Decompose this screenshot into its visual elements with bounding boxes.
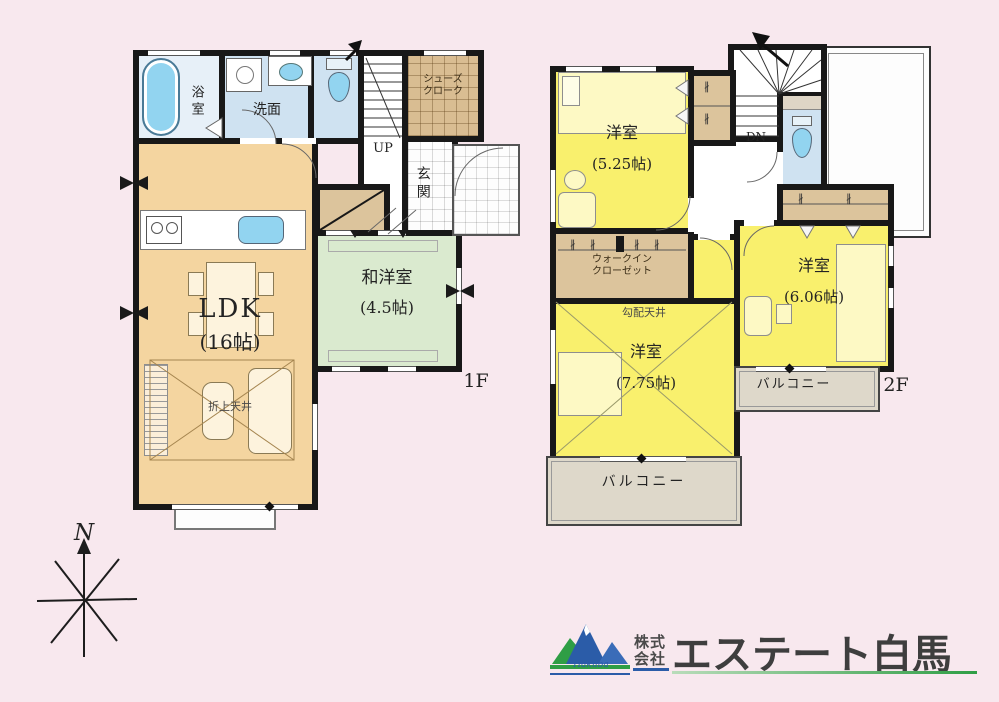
window-toilet-1f [330, 50, 356, 56]
floor1-label: 1F [454, 370, 498, 393]
ldk-label: LDK [178, 294, 282, 325]
window-606-east-2 [888, 288, 894, 308]
bath-label: 浴室 [188, 72, 204, 132]
hanger-symbol: ∦ [590, 238, 596, 251]
washroom-label: 洗面 [222, 102, 312, 119]
dining-chair [188, 272, 204, 296]
stove [146, 216, 182, 244]
door-gap-washroom [240, 138, 276, 144]
window-525-west [550, 170, 556, 222]
washitsu-closet-outline [328, 240, 438, 252]
closet-525 [688, 70, 736, 146]
compass-north-label: N [62, 520, 106, 548]
balcony-south [546, 456, 742, 526]
door-gap-775 [698, 234, 730, 240]
window-ldk-south [172, 504, 298, 510]
toilet-2f-counter [783, 96, 821, 110]
room775-size-label: (7.75帖) [592, 374, 700, 392]
window-shoe-closet [424, 50, 466, 56]
logo-mountain-script: Hakuba [556, 660, 626, 671]
hanger-symbol: ∦ [798, 192, 804, 205]
hanger-symbol: ∦ [654, 238, 660, 251]
desk-525 [558, 192, 596, 228]
stairs-up-label: UP [364, 141, 402, 157]
vanity-bowl [279, 63, 303, 81]
chair-525 [564, 170, 586, 190]
vanity-sink [268, 56, 312, 86]
balcony-east-label: バルコニー [738, 377, 850, 393]
porch [452, 144, 520, 236]
dining-chair [258, 272, 274, 296]
kitchen-sink [238, 216, 284, 244]
bathtub [142, 58, 180, 136]
window-washitsu-south-1 [332, 366, 360, 372]
room606-size-label: (6.06帖) [762, 288, 866, 306]
compass-star [37, 538, 137, 657]
tv-board [144, 364, 168, 456]
toilet-2f-tank [792, 116, 812, 126]
hanger-symbol: ∦ [634, 238, 640, 251]
room525-label: 洋室 [582, 123, 662, 142]
room525-size-label: (5.25帖) [570, 155, 674, 173]
washing-machine [226, 58, 262, 92]
burner-1 [151, 222, 163, 234]
window-606-east-1 [888, 246, 894, 266]
balcony-south-inner-line [551, 461, 737, 521]
toilet-1f-tank [326, 58, 352, 70]
room606-label: 洋室 [772, 256, 856, 275]
logo-company-type-2: 会社 [634, 648, 666, 669]
ldk-size-label: (16帖) [178, 330, 282, 354]
washitsu-closet-outline [328, 350, 438, 362]
logo-blue-underline [633, 668, 669, 671]
balcony-south-label: バルコニー [584, 474, 704, 491]
room-775-entry [688, 234, 740, 304]
entrance-label: 玄関 [414, 152, 431, 216]
chair-606 [776, 304, 792, 324]
understair-closet [314, 184, 390, 236]
window-washitsu-south-2 [388, 366, 416, 372]
window-washitsu-north-1 [326, 230, 354, 236]
hanger-symbol: ∦ [846, 192, 852, 205]
window-775-west [550, 330, 556, 384]
ceiling-note-2f: 勾配天井 [600, 306, 688, 319]
ceiling-note-1f: 折上天井 [184, 400, 276, 413]
washitsu-label: 和洋室 [340, 268, 434, 288]
hanger-symbol: ∦ [704, 80, 710, 93]
door-gap-525 [688, 198, 694, 232]
washing-machine-drum [236, 66, 254, 84]
door-gap-606 [744, 220, 774, 226]
window-washitsu-east [456, 268, 462, 304]
stairs-down-label: DN [736, 130, 776, 144]
floor2-label: 2F [874, 374, 918, 397]
hanger-symbol: ∦ [704, 112, 710, 125]
window-ldk-east [312, 404, 318, 450]
room775-label: 洋室 [606, 342, 686, 361]
window-washitsu-north-2 [378, 230, 406, 236]
washitsu-size-label: (4.5帖) [340, 298, 434, 317]
floor-plan-canvas: ∦ ∦ ∦ ∦ ∦ ∦ ∦ ∦ 浴室 洗面 UP 玄関 シューズクローク LDK… [0, 0, 999, 702]
bed-525-pillow [562, 76, 580, 106]
shoe-closet-label: シューズクローク [402, 74, 484, 98]
wic-label: ウォークインクローゼット [570, 254, 674, 278]
logo-green-underline [672, 671, 977, 674]
door-gap-ldk [282, 138, 316, 144]
door-gap-toilet-2f [777, 152, 783, 184]
window-bath [148, 50, 200, 56]
hanger-symbol: ∦ [570, 238, 576, 251]
burner-2 [166, 222, 178, 234]
